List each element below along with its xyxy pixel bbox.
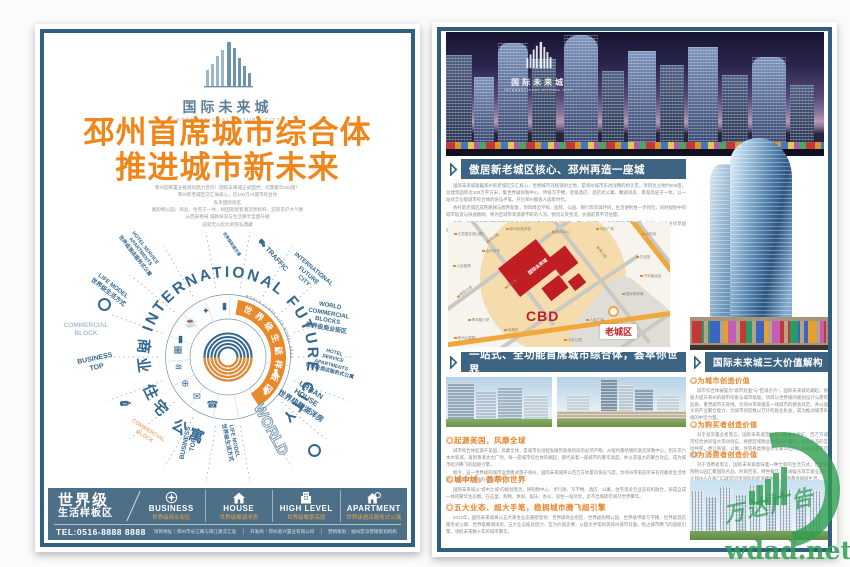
banner-location-text: 傲居新老城区核心、邳州再造一座城 [461, 159, 686, 179]
render-photo-street [446, 377, 552, 427]
section-city-title: ◎城中城，荟萃你世界 [446, 474, 686, 485]
map-poi: 青年路小学 [468, 318, 489, 323]
banner-values-text: 国际未来城三大价值解构 [705, 352, 828, 372]
grade-block: 世界级 生活样板区 [48, 491, 119, 521]
wheel-icon: ☎ [206, 400, 218, 411]
wheel-ring-dot [308, 444, 321, 457]
section-five-formats: ◎五大业态、超大手笔，稳拥城市腾飞超引擎 2012年，国际未来城将以五大黄金业态… [446, 502, 686, 537]
building-icon [273, 491, 340, 504]
hero-logo-en: INTERNATIONAL FUTURE CITY [504, 88, 573, 92]
map-poi: 国际商贸城 [622, 292, 643, 297]
wheel-icon: ✉ [193, 391, 201, 402]
map-poi: 奥体中心 [552, 230, 570, 235]
brand-building-icon [196, 40, 260, 92]
section-city-body: 国际未来城以“城中之城”的规划理念，将购物中心、步行街、写字楼、酒店、公寓、住宅… [446, 487, 686, 501]
brand-logo: 国际未来城 INTERNATIONAL FUTURE CITY [35, 40, 420, 122]
phone-number: TEL:0516-8888 8888 [56, 527, 146, 537]
poster-canvas: 国际未来城 INTERNATIONAL FUTURE CITY 邳州首席城市综合… [0, 0, 850, 567]
intro-text: 邳州迎来置业投资的鼎力巨作！国际未来城正式面世，问鼎繁华600亩！邳州新老城区交… [35, 184, 420, 228]
category-item-business: BUSINESS世界级商业街区 [138, 490, 205, 522]
map-poi: 运河中学 [482, 249, 500, 254]
wheel-icon: ▦ [173, 344, 182, 355]
wheel-icon: ≋ [175, 362, 183, 373]
grade-sublabel: 生活样板区 [58, 509, 113, 520]
section-five-title: ◎五大业态、超大手笔，稳拥城市腾飞超引擎 [446, 502, 686, 513]
value-city-title: ◎为城市创造价值 [690, 376, 828, 386]
value-consumer-title: ◎为消费者创造价值 [690, 450, 828, 460]
bottom-info-bar: 世界级 生活样板区 BUSINESS世界级商业街区HOUSE世界级瞰湖洋房HIG… [48, 488, 407, 540]
headline-line1: 邳州首席城市综合体 [35, 116, 420, 151]
banner-location: 傲居新老城区核心、邳州再造一座城 [446, 159, 686, 179]
grade-label: 世界级 [58, 493, 113, 509]
map-poi: 汽车客运站 [640, 274, 661, 279]
category-item-apartment: APARTMENT世界级酒店服务式公寓 [340, 490, 408, 522]
render-photo-cityscape [557, 377, 686, 427]
wheel-icon: ⊕ [181, 378, 189, 389]
contact-row: TEL:0516-8888 8888 项目地址｜邳州市长江路与珠江路交汇处|开发… [54, 524, 401, 540]
map-poi: 人民医院 [453, 264, 471, 269]
cbd-label: CBD [526, 308, 559, 324]
banner-values: 国际未来城三大价值解构 [690, 352, 828, 372]
old-town-label: 老城区 [600, 324, 637, 339]
section-five-body: 2012年，国际未来城将以五大黄金业态重磅登场：世界级商业街区、世界级购物公园、… [446, 515, 686, 535]
headline-line2: 推进城市新未来 [35, 151, 420, 186]
location-map: 国际未来城 CBD 老城区 江苏银杏湖公园邳州实验学校奥体中心市民广场火车站运河… [448, 222, 670, 347]
category-item-high-level: HIGH LEVEL世界级瞰景高层 [272, 490, 340, 522]
wheel-label: COMMERCIAL BLOCK [64, 322, 109, 338]
brand-name-cn: 国际未来城 [35, 97, 420, 117]
residential-render [690, 480, 828, 540]
wheel-icon: ✦ [202, 306, 210, 317]
value-buyer-title: ◎为购买者创造价值 [690, 420, 828, 430]
chevron-icon [446, 352, 461, 372]
section-city-in-city: ◎城中城，荟萃你世界 国际未来城以“城中之城”的规划理念，将购物中心、步行街、写… [446, 474, 686, 503]
right-page: 国际未来城 INTERNATIONAL FUTURE CITY 傲居新老城区核心… [432, 22, 837, 557]
wheel-icon: ☕ [185, 317, 197, 329]
section-origin-title: ◎起源美国，风靡全球 [446, 435, 686, 446]
value-city-body: 城市综合体被誉为“城市封面”与“区域名片”，国际未来城的崛起，将极大提升邳州的城… [690, 388, 828, 422]
bottom-bar-categories: 世界级 生活样板区 BUSINESS世界级商业街区HOUSE世界级瞰湖洋房HIG… [48, 488, 407, 524]
map-poi: 文化馆 [636, 255, 650, 260]
apartment-icon [341, 491, 408, 504]
chevron-icon [690, 352, 705, 372]
wheel-icon: ☛ [274, 344, 283, 355]
wheel-ring-dot [98, 298, 111, 311]
hero-logo-cn: 国际未来城 [504, 77, 573, 88]
house-icon [206, 491, 273, 504]
map-poi: 邳州大剧院 [454, 336, 475, 341]
road-junction [608, 306, 619, 317]
category-items: BUSINESS世界级商业街区HOUSE世界级瞰湖洋房HIGH LEVEL世界级… [138, 490, 407, 522]
banner-complex: 一站式、全功能首席城市综合体，荟萃你世界 [446, 352, 686, 372]
chevron-icon [446, 159, 461, 179]
wheel-icon: ▮ [222, 301, 227, 312]
map-poi: 江苏银杏湖公园 [454, 232, 483, 237]
company-info: 项目地址｜邳州市长江路与珠江路交汇处|开发商｜邳州富兴置业有限公司|营销策划｜福… [154, 529, 397, 535]
map-poi: 火车站 [642, 232, 656, 237]
left-page: 国际未来城 INTERNATIONAL FUTURE CITY 邳州首席城市综合… [35, 24, 420, 552]
wheel-icon: ▮ [273, 367, 278, 378]
map-poi: 邳州实验学校 [506, 227, 531, 232]
value-wheel-diagram: INTERNATIONAL FUTURE CITY世界级生活样板区WORLD C… [60, 228, 396, 488]
compass-icon [138, 491, 205, 504]
retail-podium [690, 317, 828, 350]
hero-logo: 国际未来城 INTERNATIONAL FUTURE CITY [504, 42, 573, 92]
main-headline: 邳州首席城市综合体 推进城市新未来 [35, 116, 420, 185]
hero-building-icon [519, 42, 559, 72]
map-poi: 中央公园 [564, 338, 582, 343]
banner-complex-text: 一站式、全功能首席城市综合体，荟萃你世界 [461, 352, 686, 372]
map-poi: 人民广场 [586, 318, 604, 323]
map-poi: 市民广场 [596, 227, 614, 232]
map-poi: 市政府 [504, 328, 518, 333]
skyscraper-render [690, 138, 828, 350]
category-item-house: HOUSE世界级瞰湖洋房 [205, 490, 273, 522]
wheel-icon: ▮ [263, 385, 268, 396]
value-city: ◎为城市创造价值 城市综合体被誉为“城市封面”与“区域名片”，国际未来城的崛起，… [690, 376, 828, 424]
